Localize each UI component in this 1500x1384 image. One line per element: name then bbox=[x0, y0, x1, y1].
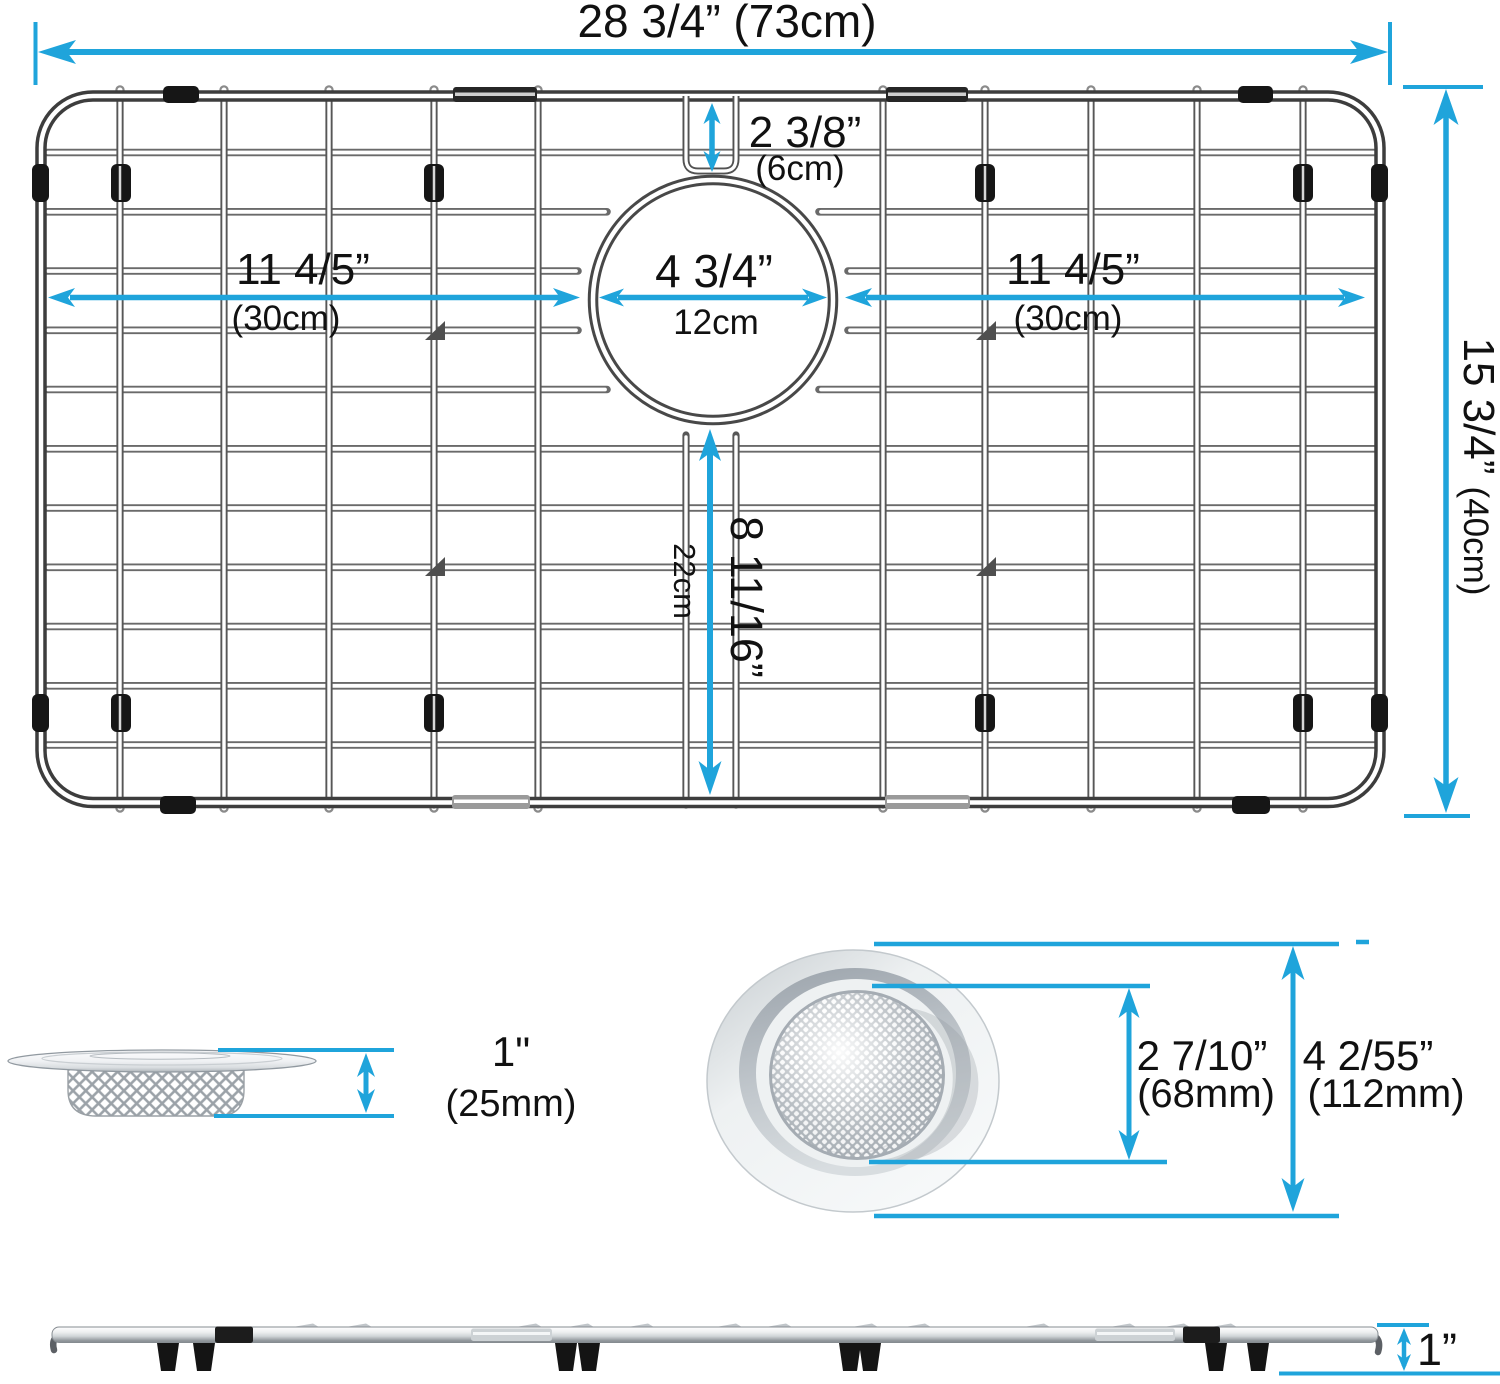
svg-text:28 3/4” (73cm): 28 3/4” (73cm) bbox=[577, 0, 876, 47]
svg-text:12cm: 12cm bbox=[673, 303, 759, 342]
svg-text:15 3/4”: 15 3/4” bbox=[1454, 338, 1500, 475]
svg-text:1": 1" bbox=[492, 1028, 530, 1075]
svg-text:8 11/16”: 8 11/16” bbox=[721, 516, 772, 678]
svg-text:11 4/5”: 11 4/5” bbox=[1006, 245, 1140, 294]
svg-text:22cm: 22cm bbox=[667, 543, 702, 619]
svg-text:11 4/5”: 11 4/5” bbox=[236, 245, 370, 294]
svg-text:(68mm): (68mm) bbox=[1137, 1072, 1275, 1116]
svg-text:1”: 1” bbox=[1417, 1324, 1457, 1375]
svg-text:(6cm): (6cm) bbox=[755, 149, 844, 188]
svg-text:4 3/4”: 4 3/4” bbox=[655, 245, 773, 297]
svg-text:(25mm): (25mm) bbox=[446, 1083, 577, 1125]
svg-text:(40cm): (40cm) bbox=[1456, 487, 1495, 596]
svg-text:(30cm): (30cm) bbox=[1014, 299, 1123, 338]
svg-text:(112mm): (112mm) bbox=[1307, 1072, 1464, 1116]
svg-text:(30cm): (30cm) bbox=[232, 299, 341, 338]
